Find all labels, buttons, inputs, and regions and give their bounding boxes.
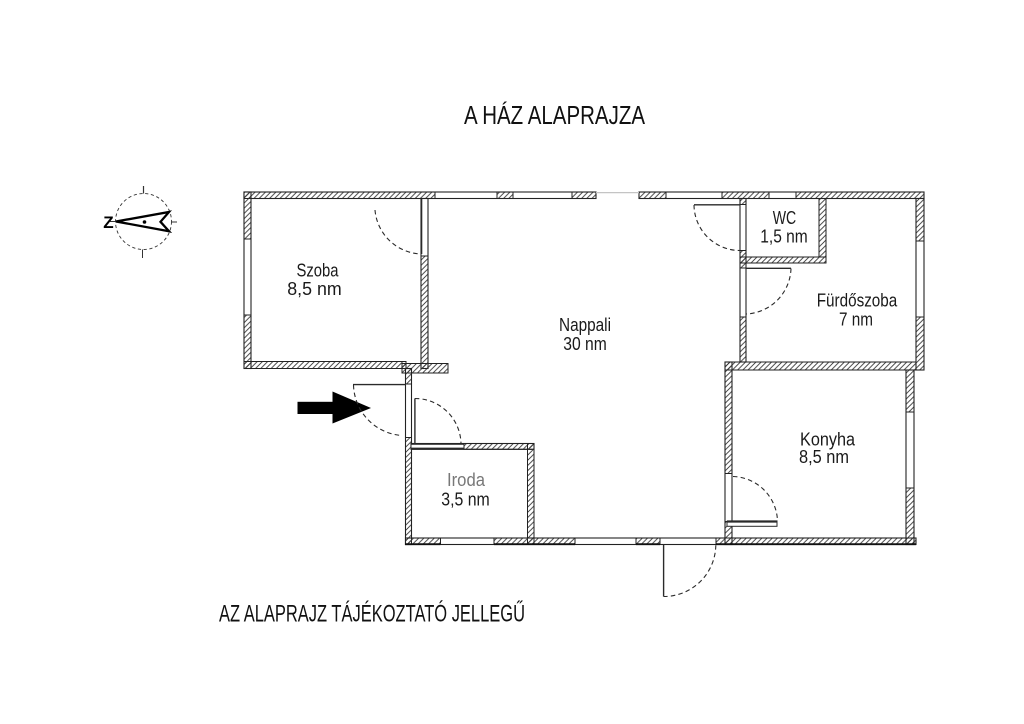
svg-text:Szoba: Szoba [297, 261, 340, 281]
svg-text:Nappali: Nappali [559, 315, 611, 335]
svg-text:Iroda: Iroda [447, 470, 486, 490]
svg-text:Fürdőszoba: Fürdőszoba [817, 291, 898, 311]
svg-text:WC: WC [773, 208, 797, 228]
svg-text:Z: Z [103, 213, 113, 232]
svg-text:AZ ALAPRAJZ TÁJÉKOZTATÓ JELLEG: AZ ALAPRAJZ TÁJÉKOZTATÓ JELLEGŰ [219, 601, 525, 628]
svg-text:A HÁZ ALAPRAJZA: A HÁZ ALAPRAJZA [464, 101, 645, 130]
svg-text:7 nm: 7 nm [839, 309, 873, 329]
svg-text:1,5 nm: 1,5 nm [760, 226, 808, 246]
svg-text:30 nm: 30 nm [563, 334, 607, 354]
svg-text:8,5 nm: 8,5 nm [799, 447, 849, 467]
svg-text:8,5 nm: 8,5 nm [287, 279, 342, 299]
svg-text:3,5 nm: 3,5 nm [441, 489, 490, 509]
